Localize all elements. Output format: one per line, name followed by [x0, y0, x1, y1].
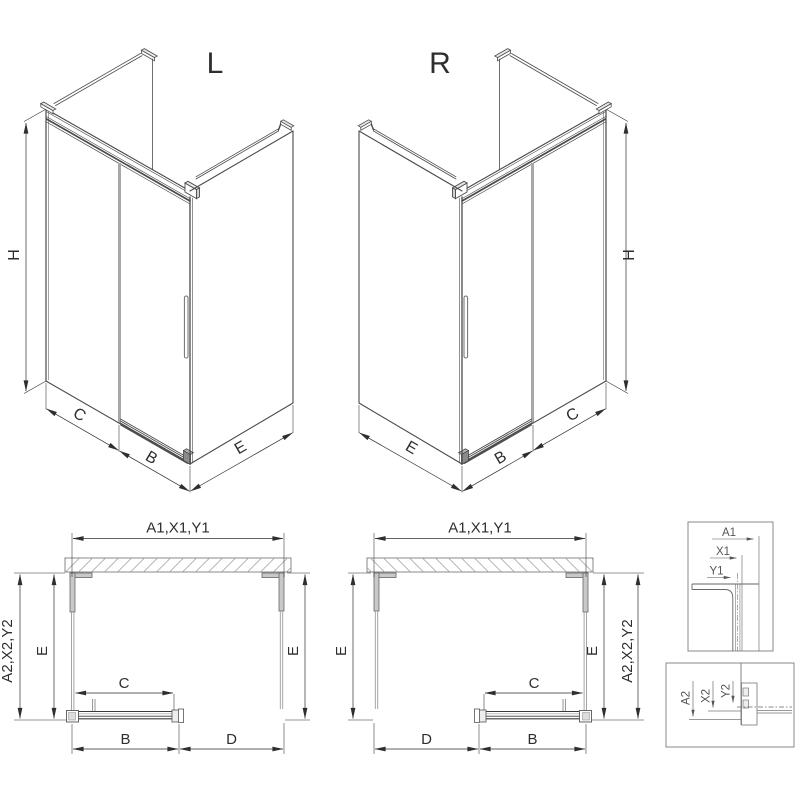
entry-label: D — [421, 731, 432, 748]
detail-x1-label: X1 — [716, 546, 730, 558]
fixed-panel-label: C — [70, 405, 89, 426]
entry-label: D — [226, 731, 237, 748]
iso-view-left: L H C B E — [6, 47, 294, 493]
detail-a2-label: A2 — [681, 691, 693, 705]
door-label: B — [492, 448, 510, 468]
height-label: H — [621, 249, 638, 261]
side-panel-label: E — [402, 438, 420, 458]
depth-left-label: E — [333, 646, 350, 656]
shower-enclosure-drawing: L H C B E R H C B E A1,X1,Y1 A2,X2,Y2 E … — [0, 0, 800, 800]
plan-view-right: A1,X1,Y1 E E A2,X2,Y2 C D B — [333, 520, 644, 755]
profile-inner-edge — [692, 590, 733, 652]
plan-view-left: A1,X1,Y1 A2,X2,Y2 E E C B D — [0, 520, 310, 755]
iso-enclosure-left — [24, 49, 294, 493]
plan-drawing-left — [14, 533, 310, 754]
detail-y2-label: Y2 — [721, 684, 733, 698]
detail-x2-label: X2 — [701, 689, 713, 703]
detail-frame — [688, 522, 773, 651]
width-top-label: A1,X1,Y1 — [448, 520, 511, 537]
view-label-left: L — [207, 47, 224, 80]
plan-drawing-right — [348, 533, 644, 754]
iso-enclosure-right — [358, 49, 628, 493]
width-top-label: A1,X1,Y1 — [146, 520, 209, 537]
fixed-panel-label: C — [119, 675, 130, 692]
side-panel-label: E — [232, 438, 250, 458]
door-label: B — [120, 731, 130, 748]
view-label-right: R — [429, 47, 451, 80]
detail-bottom-rail: A2 X2 Y2 — [666, 663, 794, 747]
depth-right-label: E — [584, 646, 601, 656]
depth-left-label: E — [34, 646, 51, 656]
detail-wall-profile: A1 X1 Y1 — [688, 522, 773, 651]
detail-y1-label: Y1 — [709, 566, 723, 578]
door-label: B — [527, 731, 537, 748]
height-label: H — [6, 249, 23, 261]
width-alt-label: A2,X2,Y2 — [619, 619, 636, 682]
iso-view-right: R H C B E — [358, 47, 638, 493]
width-alt-label: A2,X2,Y2 — [0, 619, 16, 682]
technical-drawing-page: L H C B E R H C B E A1,X1,Y1 A2,X2,Y2 E … — [0, 0, 800, 800]
door-label: B — [142, 448, 160, 468]
detail-a1-label: A1 — [722, 527, 736, 539]
fixed-panel-label: C — [563, 405, 582, 426]
fixed-panel-label: C — [529, 675, 540, 692]
depth-right-label: E — [285, 646, 302, 656]
